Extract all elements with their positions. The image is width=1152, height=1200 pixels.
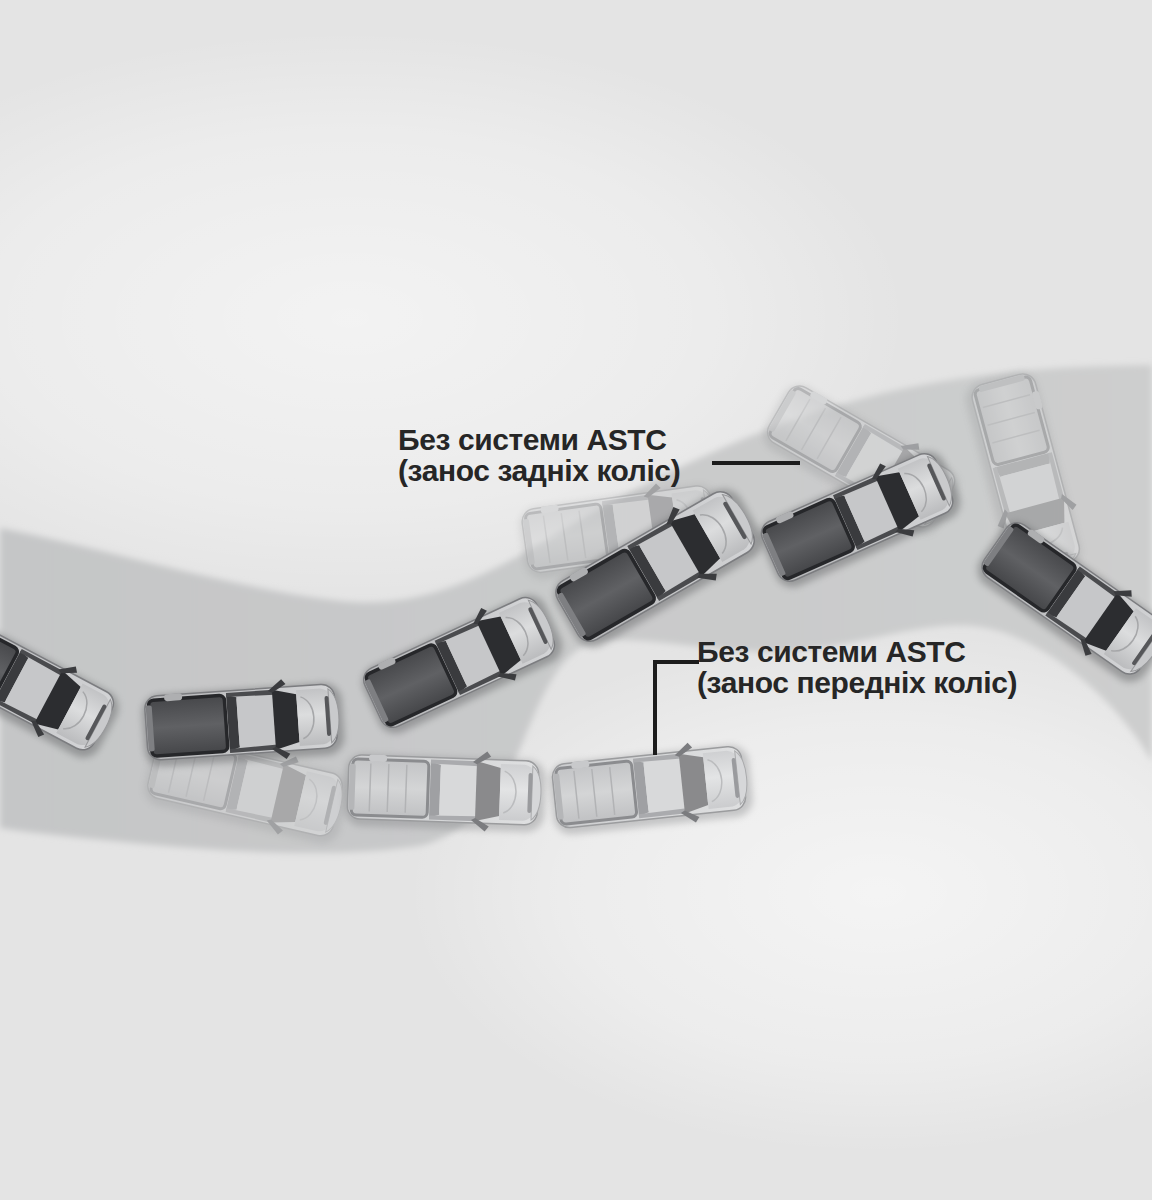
- label-understeer-line2: (занос передніх коліс): [697, 667, 1017, 698]
- road-and-cars-canvas: [0, 0, 1152, 1200]
- label-oversteer-line2: (занос задніх коліс): [398, 455, 680, 486]
- label-oversteer-line1: Без системи ASTC: [398, 424, 680, 455]
- astc-skid-diagram: Без системи ASTC (занос задніх коліс) Бе…: [0, 0, 1152, 1200]
- label-oversteer: Без системи ASTC (занос задніх коліс): [398, 424, 680, 486]
- pointer-line-understeer-vertical: [653, 660, 657, 755]
- pointer-line-understeer-horizontal: [653, 660, 699, 664]
- label-understeer: Без системи ASTC (занос передніх коліс): [697, 636, 1017, 698]
- pointer-line-oversteer: [712, 461, 800, 465]
- car-front-skid-2: [344, 747, 547, 834]
- label-understeer-line1: Без системи ASTC: [697, 636, 1017, 667]
